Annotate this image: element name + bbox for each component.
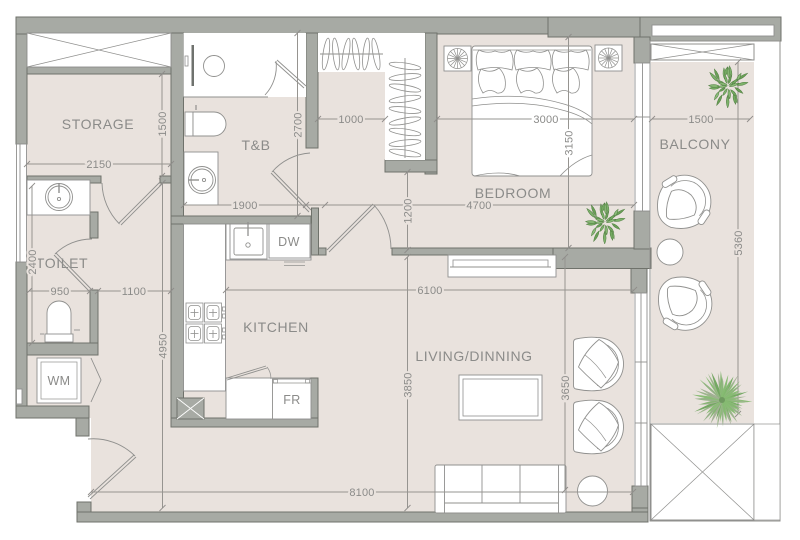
svg-text:1500: 1500: [157, 111, 169, 136]
svg-text:3850: 3850: [403, 372, 415, 397]
svg-text:BEDROOM: BEDROOM: [475, 185, 552, 201]
svg-text:DW: DW: [278, 235, 300, 249]
svg-text:2150: 2150: [86, 159, 111, 171]
svg-text:T&B: T&B: [241, 137, 270, 153]
svg-text:3000: 3000: [533, 114, 558, 126]
svg-text:1500: 1500: [688, 114, 713, 126]
svg-text:BALCONY: BALCONY: [659, 136, 730, 152]
svg-text:5360: 5360: [733, 230, 745, 255]
svg-text:4700: 4700: [466, 200, 491, 212]
svg-text:3150: 3150: [564, 130, 576, 155]
svg-text:4950: 4950: [158, 333, 170, 358]
svg-text:950: 950: [51, 286, 70, 298]
svg-text:1900: 1900: [232, 200, 257, 212]
svg-text:KITCHEN: KITCHEN: [243, 319, 309, 335]
svg-text:LIVING/DINNING: LIVING/DINNING: [415, 348, 532, 364]
svg-text:6100: 6100: [417, 285, 442, 297]
svg-text:WM: WM: [47, 374, 70, 388]
svg-text:FR: FR: [283, 393, 300, 407]
svg-text:3650: 3650: [560, 375, 572, 400]
svg-text:8100: 8100: [349, 487, 374, 499]
svg-text:1000: 1000: [338, 114, 363, 126]
svg-text:2400: 2400: [27, 249, 39, 274]
svg-text:STORAGE: STORAGE: [62, 116, 134, 132]
svg-text:2700: 2700: [293, 112, 305, 137]
svg-text:1200: 1200: [403, 198, 415, 223]
svg-text:1100: 1100: [122, 286, 146, 298]
